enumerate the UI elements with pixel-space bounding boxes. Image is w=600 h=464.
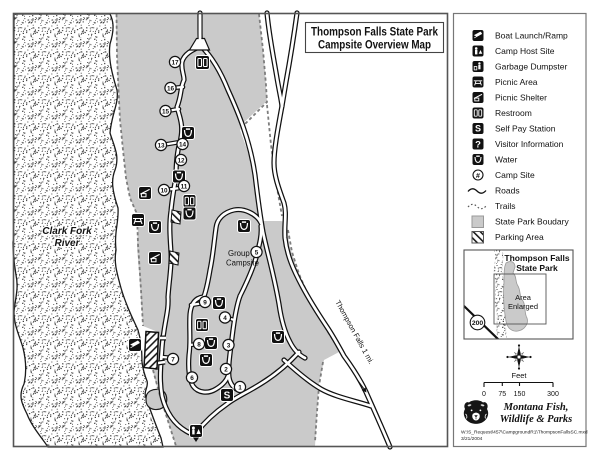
svg-text:Feet: Feet — [511, 371, 527, 380]
svg-text:0: 0 — [482, 391, 486, 398]
svg-text:Roads: Roads — [495, 186, 520, 196]
svg-text:15: 15 — [162, 108, 170, 115]
svg-text:Picnic Area: Picnic Area — [495, 77, 538, 87]
svg-text:Thompson Falls State Park: Thompson Falls State Park — [311, 27, 439, 39]
svg-text:Camp Host Site: Camp Host Site — [495, 46, 555, 56]
svg-text:River: River — [54, 238, 80, 249]
svg-text:12: 12 — [177, 157, 185, 164]
svg-text:Wildlife & Parks: Wildlife & Parks — [500, 414, 573, 425]
svg-text:Area: Area — [515, 293, 532, 302]
svg-text:Self Pay Station: Self Pay Station — [495, 124, 556, 134]
svg-text:Campsite: Campsite — [226, 259, 259, 268]
svg-text:3: 3 — [227, 342, 231, 349]
svg-text:Camp Site: Camp Site — [495, 170, 535, 180]
svg-text:Clark Fork: Clark Fork — [42, 226, 92, 237]
svg-text:Garbage Dumpster: Garbage Dumpster — [495, 62, 567, 72]
svg-text:S: S — [475, 124, 481, 134]
svg-text:75: 75 — [498, 391, 506, 398]
svg-text:Group: Group — [228, 249, 250, 258]
svg-text:6: 6 — [190, 375, 194, 382]
svg-text:14: 14 — [179, 141, 187, 148]
svg-text:State Park: State Park — [516, 263, 558, 273]
svg-text:Parking Area: Parking Area — [495, 232, 544, 242]
svg-text:Thompson Falls: Thompson Falls — [504, 253, 569, 263]
svg-text:Picnic Shelter: Picnic Shelter — [495, 93, 547, 103]
svg-text:Enlarged: Enlarged — [508, 302, 538, 311]
svg-text:Boat Launch/Ramp: Boat Launch/Ramp — [495, 31, 568, 41]
svg-text:1: 1 — [238, 384, 242, 391]
svg-text:9: 9 — [203, 299, 207, 306]
svg-text:S: S — [224, 391, 231, 402]
svg-text:?: ? — [475, 139, 481, 150]
svg-text:3/21/2004: 3/21/2004 — [461, 436, 483, 442]
svg-text:State Park Boudary: State Park Boudary — [495, 217, 569, 227]
svg-text:W:\S_Request\457\CampgroundR1\: W:\S_Request\457\CampgroundR1\ThompsonFa… — [461, 430, 588, 436]
svg-text:Restroom: Restroom — [495, 108, 532, 118]
svg-text:200: 200 — [472, 320, 484, 327]
svg-text:7: 7 — [171, 356, 175, 363]
svg-text:Visitor Information: Visitor Information — [495, 139, 564, 149]
svg-text:#: # — [476, 173, 480, 180]
svg-text:Water: Water — [495, 155, 518, 165]
svg-text:150: 150 — [514, 391, 526, 398]
svg-text:13: 13 — [157, 142, 165, 149]
svg-text:Montana Fish,: Montana Fish, — [503, 402, 569, 413]
svg-text:4: 4 — [223, 315, 227, 322]
svg-text:10: 10 — [160, 187, 168, 194]
svg-text:2: 2 — [224, 366, 228, 373]
svg-text:17: 17 — [171, 59, 179, 66]
svg-text:Trails: Trails — [495, 201, 515, 211]
svg-text:16: 16 — [167, 85, 175, 92]
svg-text:Campsite Overview Map: Campsite Overview Map — [318, 40, 431, 52]
svg-text:300: 300 — [547, 391, 559, 398]
svg-text:8: 8 — [197, 341, 201, 348]
svg-text:5: 5 — [255, 249, 259, 256]
svg-text:11: 11 — [181, 183, 188, 190]
